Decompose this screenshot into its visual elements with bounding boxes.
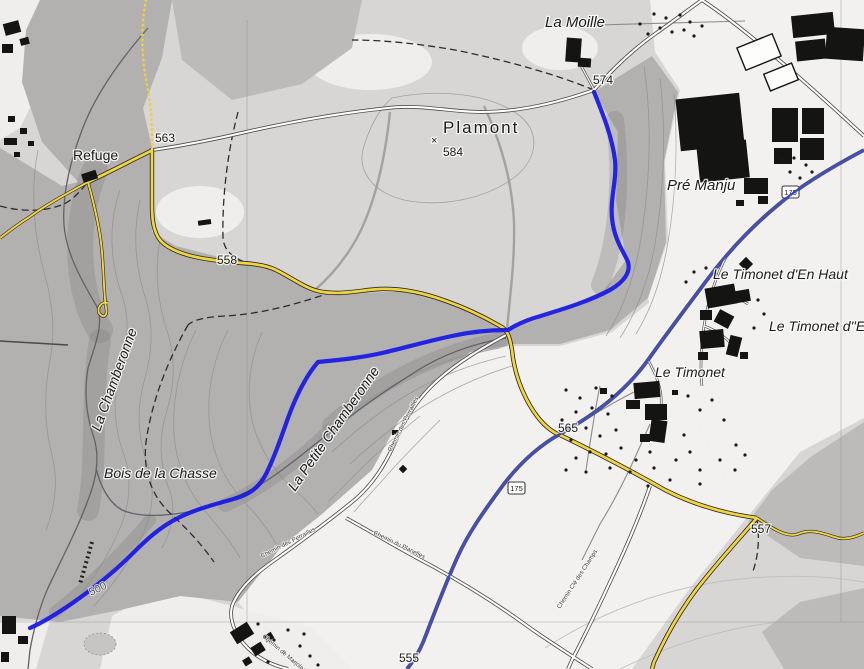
place-label-la-moille: La Moille [545,14,605,31]
place-label-le-timonet: Le Timonet [655,364,726,380]
place-label-plamont: Plamont [443,118,519,137]
scrub-patch [84,633,116,655]
elevation-label-574: 574 [593,73,613,87]
elevation-label-584: 584 [443,145,463,159]
spot-height-marker: × [431,135,437,147]
elevation-label-557: 557 [751,522,771,536]
elevation-label-555: 555 [399,651,419,665]
route-shield-number: 175 [510,484,523,493]
place-label-bois-de-la-chasse: Bois de la Chasse [104,465,217,481]
elevation-label-558: 558 [217,253,237,267]
elevation-label-563: 563 [155,131,175,145]
place-label-refuge: Refuge [73,147,118,163]
place-label-le-timonet-den-haut: Le Timonet d'En Haut [713,266,849,282]
map-viewport[interactable]: 175 175 [0,0,864,669]
elevation-label-565: 565 [558,421,578,435]
route-shield: 175 [508,482,525,494]
topo-map-canvas[interactable]: 175 175 [0,0,864,669]
place-label-le-timonet-den: Le Timonet d''En [769,318,864,334]
place-label-pre-manju: Pré Manju [667,177,736,194]
